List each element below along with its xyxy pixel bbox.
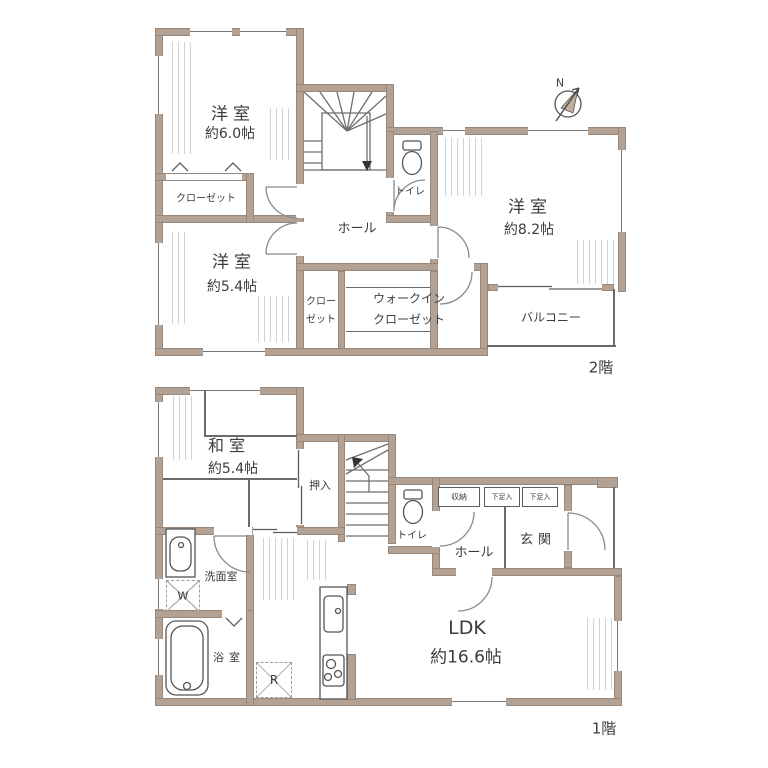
floor1-label: 1階: [592, 718, 617, 739]
washer-label: W: [178, 590, 189, 603]
window-marker: [203, 348, 265, 356]
wall: [155, 215, 304, 223]
door-gap: [564, 511, 572, 551]
hatch-shading: [168, 396, 192, 460]
hall-2f-label: ホール: [337, 218, 376, 237]
window-marker: [528, 127, 588, 135]
door-gap: [222, 610, 246, 618]
tatami-line: [163, 478, 297, 480]
compass-n-label: N: [556, 77, 564, 90]
door-gap: [456, 568, 492, 576]
wic-label-line2: クローゼット: [373, 311, 445, 328]
door-gap: [386, 178, 394, 212]
door-gap: [430, 226, 438, 259]
room-area-yoshitsu-54: 約5.4帖: [207, 276, 257, 296]
sliding-door-gap: [296, 449, 304, 525]
porch-edge-line: [613, 487, 615, 568]
balcony-label: バルコニー: [521, 309, 581, 326]
window-marker: [190, 387, 260, 395]
wall: [347, 654, 356, 700]
hatch-shading: [167, 232, 189, 324]
tatami-line: [248, 480, 250, 527]
window-marker: [155, 579, 163, 609]
hatch-shading: [167, 42, 193, 154]
balcony-rail-line: [613, 289, 615, 347]
fridge-label: R: [270, 673, 278, 687]
room-area-yoshitsu-82: 約8.2帖: [504, 219, 554, 239]
compass-icon: [555, 88, 581, 121]
toilet-1f-label: トイレ: [397, 527, 427, 542]
hatch-shading: [265, 108, 293, 160]
wall: [338, 434, 345, 542]
stairs-down-arrow: [362, 161, 372, 171]
room-area-washitsu: 約5.4帖: [208, 458, 258, 478]
wall: [597, 477, 618, 488]
room-area-yoshitsu-6: 約6.0帖: [205, 123, 255, 143]
closet-door-gap: [166, 174, 242, 180]
shoe-cabinet-label: 下足入: [530, 492, 551, 502]
linework-overlay: [0, 0, 768, 768]
tatami-line: [204, 390, 206, 437]
wall: [296, 84, 394, 92]
wall: [388, 546, 440, 554]
shoe-cabinet-label: 下足入: [492, 492, 513, 502]
window-marker: [614, 621, 622, 671]
storage-label: 収納: [451, 492, 467, 503]
room-label-washitsu: 和室: [208, 432, 250, 456]
wall: [155, 698, 622, 706]
window-marker: [155, 402, 163, 457]
stairs-up-arrow: [352, 457, 363, 468]
wall: [347, 584, 356, 595]
closet2-label-line2: ゼット: [306, 311, 336, 326]
wall: [386, 127, 626, 135]
hatch-shading: [302, 540, 328, 580]
door-gap: [214, 527, 252, 535]
window-marker: [452, 698, 506, 706]
window-marker: [240, 28, 286, 36]
hatch-shading: [582, 618, 612, 690]
kitchen-counter-icon: [320, 587, 347, 699]
senmen-label: 洗面室: [205, 568, 238, 584]
bath-label: 浴室: [213, 649, 245, 665]
window-marker: [618, 150, 626, 232]
ldk-label: LDK: [448, 617, 486, 639]
closet2-label-line1: クロー: [306, 293, 336, 308]
wall: [388, 477, 618, 485]
wall: [480, 263, 488, 352]
oshiire-label: 押入: [309, 477, 331, 493]
door-gap: [432, 511, 440, 547]
room-label-yoshitsu-54: 洋室: [212, 248, 256, 273]
wall: [388, 434, 396, 544]
floorplan-canvas: 洋室 約6.0帖 クローゼット 洋室 約5.4帖 ホール トイレ 洋室 約8.2…: [0, 0, 768, 768]
window-marker: [190, 28, 232, 36]
window-marker: [155, 56, 163, 114]
door-gap: [296, 222, 304, 256]
door-gap: [438, 263, 474, 271]
hatch-shading: [440, 138, 482, 196]
washbasin-icon: [166, 529, 195, 577]
wic-rail-line: [346, 287, 430, 288]
balcony-rail-line: [487, 345, 616, 347]
hatch-shading: [253, 296, 293, 342]
hatch-shading: [258, 538, 294, 600]
wall: [296, 434, 396, 442]
door-gap: [296, 184, 304, 218]
closet-label: クローゼット: [176, 190, 236, 205]
stairs-2f-icon: [304, 92, 386, 170]
hall-1f-label: ホール: [454, 542, 493, 561]
window-marker: [443, 127, 465, 135]
window-marker: [155, 639, 163, 675]
hatch-shading: [572, 240, 614, 284]
ldk-area-label: 約16.6帖: [430, 643, 502, 668]
genkan-label: 玄関: [520, 529, 556, 548]
toilet-2f-label: トイレ: [395, 183, 425, 198]
window-marker: [155, 243, 163, 325]
wic-rail-line: [346, 331, 430, 332]
wall: [246, 527, 254, 618]
wall: [246, 610, 254, 706]
wall: [296, 527, 345, 535]
room-label-yoshitsu-6: 洋室: [211, 100, 255, 125]
wall: [338, 271, 345, 352]
floor2-label: 2階: [589, 357, 614, 378]
stairs-1f-icon: [346, 444, 388, 536]
bathtub-icon: [166, 621, 208, 695]
room-label-yoshitsu-82: 洋室: [508, 193, 552, 218]
sliding-door-gap: [253, 527, 297, 535]
wic-label-line1: ウォークイン: [373, 290, 445, 307]
sliding-window-gap: [498, 284, 602, 291]
wall: [246, 173, 254, 223]
